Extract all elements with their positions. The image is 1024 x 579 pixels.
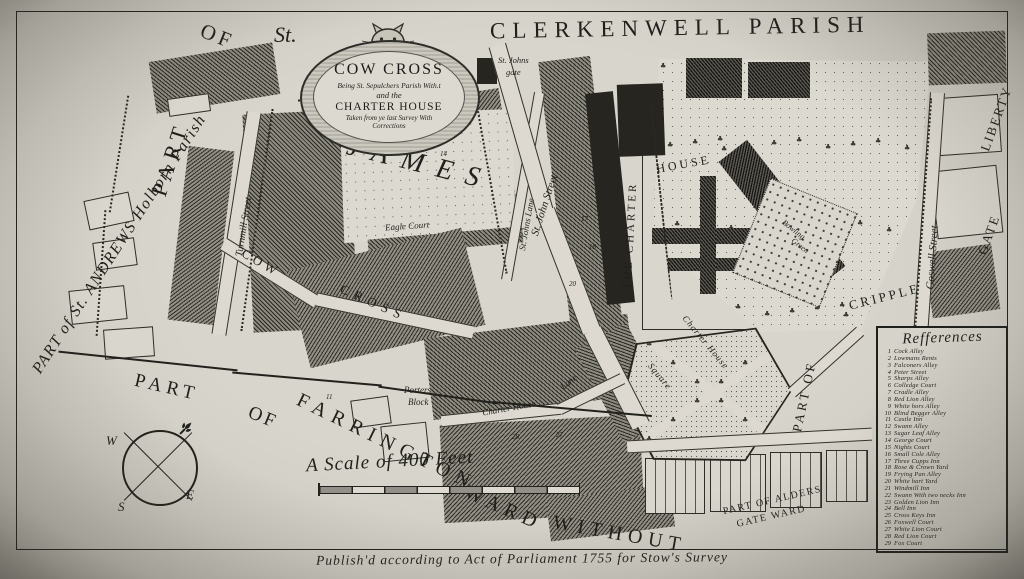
tree-glyph: ♣ <box>886 226 892 234</box>
cartouche-line4: CHARTER HOUSE <box>314 101 464 113</box>
label-the-charter: THE CHARTER <box>623 180 640 290</box>
tree-glyph: ♣ <box>742 359 748 367</box>
tree-glyph: ♣ <box>694 378 700 386</box>
building-block <box>927 31 1007 86</box>
reference-item: 29Fox Court <box>882 541 1003 548</box>
imprint: Publish'd according to Act of Parliament… <box>252 550 792 568</box>
references-list: 1Cock Alley2Lowmans Rents3Falconers Alle… <box>882 349 1003 547</box>
references-panel: Refferences 1Cock Alley2Lowmans Rents3Fa… <box>876 326 1008 553</box>
cartouche-line2: Being St. Sepulchers Parish With.t <box>314 81 464 90</box>
tree-glyph: ♣ <box>667 141 673 149</box>
label-st-johns-gate-1: St. Johns <box>498 56 529 65</box>
charterhouse-block <box>617 83 665 157</box>
plot-row <box>826 450 868 502</box>
label-porters-block-2: Block <box>408 398 429 407</box>
building-block <box>103 326 155 359</box>
label-clerkenwell-parish: CLERKENWELL PARISH <box>490 13 871 43</box>
label-of: OF <box>197 20 237 53</box>
compass-south: S <box>118 500 125 513</box>
plot-number: 17 <box>581 215 588 223</box>
label-st: St. <box>274 24 297 46</box>
plot-number: 27 <box>556 431 563 439</box>
tree-glyph: ♣ <box>789 307 795 315</box>
cartouche-title: COW CROSS <box>314 61 464 79</box>
reference-number: 29 <box>882 541 891 548</box>
plot-number: 11 <box>326 393 332 401</box>
compass-west: W <box>106 434 117 447</box>
tree-glyph: ♣ <box>718 397 724 405</box>
reference-label: Fox Court <box>894 541 922 548</box>
references-title: Refferences <box>882 328 1004 349</box>
tree-glyph: ♣ <box>646 340 652 348</box>
tree-glyph: ♣ <box>694 397 700 405</box>
tree-glyph: ♣ <box>771 139 777 147</box>
label-farrington-of: OF <box>246 403 281 432</box>
antique-map: ♣♣♣♣♣♣♣♣♣♣♣♣♣♣♣♣♣♣♣♣♣♣♣♣♣♣♣♣♣♣♣♣♣♣ ♣♣♣♣♣… <box>0 0 1024 579</box>
scale-bar <box>318 486 580 494</box>
cartouche-line6: Corrections <box>314 122 464 130</box>
tree-glyph: ♣ <box>670 359 676 367</box>
tree-glyph: ♣ <box>692 138 698 146</box>
tree-glyph: ♣ <box>718 378 724 386</box>
tree-glyph: ♣ <box>911 223 917 231</box>
plot-row <box>645 458 705 514</box>
tree-glyph: ♣ <box>843 311 849 319</box>
tree-glyph: ♣ <box>825 143 831 151</box>
plot-number: 18 <box>589 243 596 251</box>
tree-glyph: ♣ <box>766 340 772 348</box>
label-st-johns-gate-2: gate <box>506 68 521 77</box>
tree-glyph: ♣ <box>868 308 874 316</box>
garden-block <box>686 58 742 98</box>
tree-glyph: ♣ <box>893 305 899 313</box>
tree-glyph: ♣ <box>742 416 748 424</box>
tree-glyph: ♣ <box>857 219 863 227</box>
charterhouse-wing <box>700 176 716 294</box>
cartouche-inner: COW CROSS Being St. Sepulchers Parish Wi… <box>313 51 465 143</box>
garden-block <box>748 62 810 98</box>
cartouche-line5: Taken from ye last Survey With <box>314 114 464 122</box>
title-cartouche: COW CROSS Being St. Sepulchers Parish Wi… <box>300 22 476 154</box>
tree-glyph: ♣ <box>796 136 802 144</box>
tree-glyph: ♣ <box>660 62 666 70</box>
label-farrington-part: PART <box>133 371 201 404</box>
label-porters-block-1: Porters <box>404 386 431 395</box>
tree-glyph: ♣ <box>717 135 723 143</box>
tree-glyph: ♣ <box>875 137 881 145</box>
tree-glyph: ♣ <box>850 140 856 148</box>
compass-east: E <box>186 488 194 501</box>
plot-number: 28 <box>512 433 519 441</box>
tree-glyph: ♣ <box>674 220 680 228</box>
plot-number: 20 <box>569 280 576 288</box>
tree-glyph: ♣ <box>721 145 727 153</box>
ward-boundary <box>232 371 382 386</box>
cartouche-line3: and the <box>314 90 464 100</box>
tree-glyph: ♣ <box>764 310 770 318</box>
tree-glyph: ♣ <box>735 303 741 311</box>
tree-glyph: ♣ <box>839 301 845 309</box>
tree-glyph: ♣ <box>670 416 676 424</box>
tree-glyph: ♣ <box>904 144 910 152</box>
